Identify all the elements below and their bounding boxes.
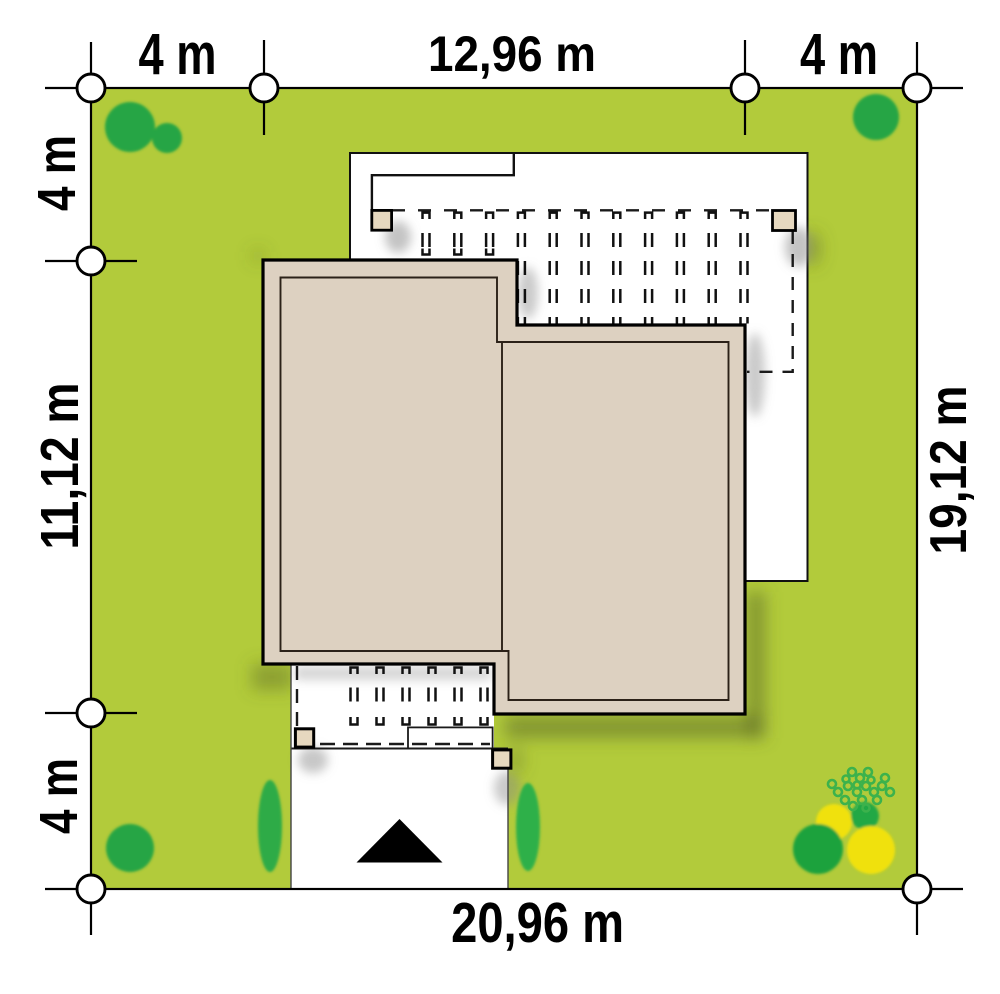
svg-text:19,12 m: 19,12 m bbox=[920, 386, 978, 555]
svg-text:4 m: 4 m bbox=[800, 22, 878, 87]
svg-text:12,96 m: 12,96 m bbox=[428, 26, 596, 82]
svg-text:20,96 m: 20,96 m bbox=[451, 891, 624, 955]
svg-text:4 m: 4 m bbox=[139, 22, 217, 87]
svg-text:11,12 m: 11,12 m bbox=[30, 383, 90, 550]
svg-text:4 m: 4 m bbox=[27, 135, 87, 211]
svg-text:4 m: 4 m bbox=[29, 758, 89, 834]
